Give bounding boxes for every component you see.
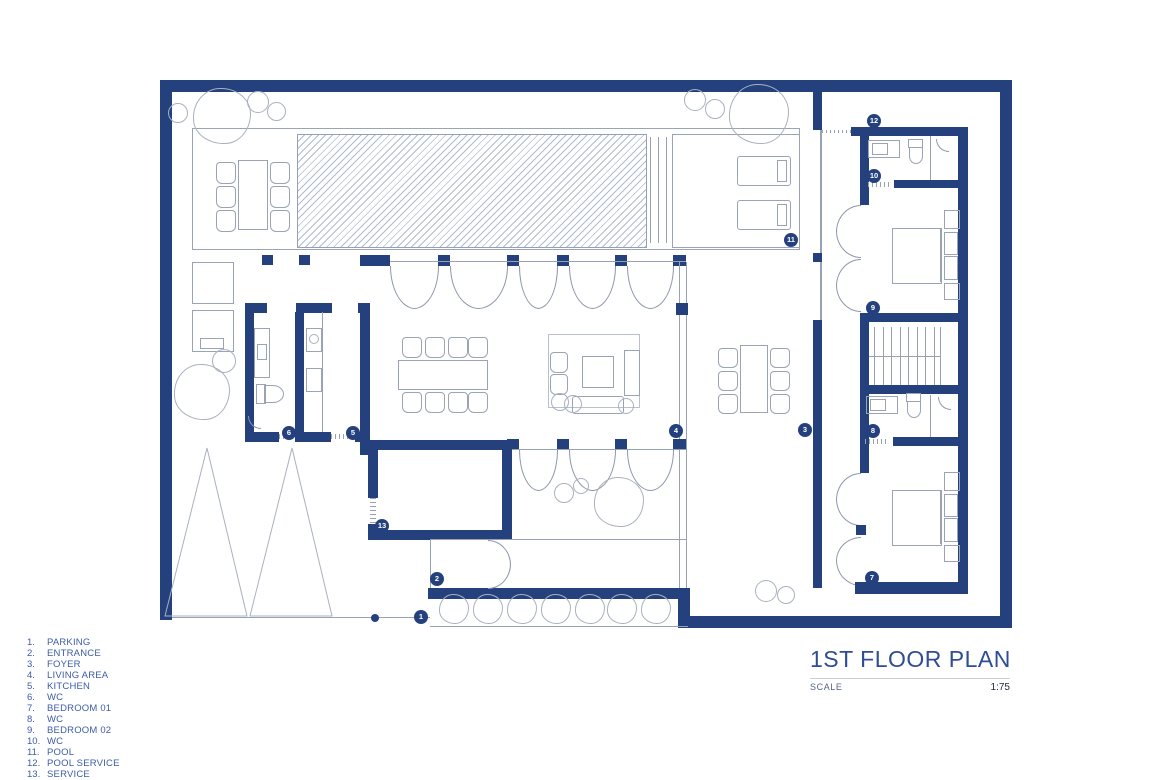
nightstand: [944, 472, 960, 491]
outdoor-chair: [270, 162, 290, 184]
legend-row: 13.SERVICE: [27, 769, 120, 780]
wall-segment: [368, 440, 378, 498]
foyer-chair: [770, 394, 790, 414]
sink: [870, 399, 886, 411]
sink: [872, 143, 888, 155]
tree: [554, 483, 574, 503]
door-track-line: [390, 261, 686, 262]
foyer-chair: [718, 348, 738, 368]
legend-number: 8.: [27, 714, 47, 725]
legend-row: 7.BEDROOM 01: [27, 703, 120, 714]
legend-number: 1.: [27, 637, 47, 648]
legend-number: 6.: [27, 692, 47, 703]
legend-label: POOL: [47, 747, 74, 758]
sun-lounger-backrest: [777, 160, 787, 182]
title-rule: [810, 678, 1010, 679]
shrub: [607, 594, 637, 624]
outdoor-chair: [216, 210, 236, 232]
toilet: [909, 147, 923, 164]
wall-segment: [894, 180, 966, 188]
dining-chair: [425, 392, 445, 413]
wall-segment: [502, 440, 512, 540]
wall-segment: [160, 80, 1012, 92]
nightstand: [944, 283, 960, 300]
ground-line: [172, 617, 430, 618]
legend-number: 3.: [27, 659, 47, 670]
door-arc: [519, 450, 539, 491]
bed: [892, 490, 942, 546]
wall-segment: [860, 446, 869, 473]
sun-lounger-backrest: [777, 204, 787, 226]
legend-row: 9.BEDROOM 02: [27, 725, 120, 736]
legend-label: WC: [47, 736, 63, 747]
tree: [684, 89, 706, 111]
scale-label: SCALE: [810, 682, 843, 693]
shower-head: [936, 139, 949, 152]
shrub: [541, 594, 571, 624]
legend-row: 3.FOYER: [27, 659, 120, 670]
tree: [247, 91, 269, 113]
bed: [892, 228, 942, 284]
legend-number: 5.: [27, 681, 47, 692]
entrance-door-arc: [488, 564, 511, 589]
plan-marker-3: 3: [798, 423, 812, 437]
tree: [594, 477, 644, 527]
outdoor-chair: [270, 186, 290, 208]
side-table: [551, 393, 569, 411]
tree: [168, 103, 188, 123]
legend-label: BEDROOM 01: [47, 703, 111, 714]
wall-segment: [813, 320, 822, 588]
legend-label: FOYER: [47, 659, 81, 670]
floor-plan-sheet: 1.PARKING2.ENTRANCE3.FOYER4.LIVING AREA5…: [0, 0, 1170, 780]
wall-segment: [295, 312, 304, 434]
pillow: [944, 232, 958, 255]
stair-mid-line: [869, 356, 940, 357]
corridor-line: [430, 539, 686, 540]
legend-number: 2.: [27, 648, 47, 659]
plan-marker-7: 7: [865, 571, 879, 585]
wall-segment: [688, 616, 1012, 628]
legend-row: 12.POOL SERVICE: [27, 758, 120, 769]
tree: [755, 580, 777, 602]
legend: 1.PARKING2.ENTRANCE3.FOYER4.LIVING AREA5…: [27, 637, 120, 780]
ground-line: [430, 626, 688, 627]
legend-row: 2.ENTRANCE: [27, 648, 120, 659]
coffee-table: [582, 356, 614, 388]
legend-label: POOL SERVICE: [47, 758, 120, 769]
foyer-chair: [718, 394, 738, 414]
door-arc: [836, 231, 861, 258]
dining-chair: [448, 392, 468, 413]
door-threshold: [865, 439, 888, 444]
shrub: [641, 594, 671, 624]
legend-number: 7.: [27, 703, 47, 714]
legend-label: WC: [47, 714, 63, 725]
plan-marker-12: 12: [867, 114, 881, 128]
wall-segment: [368, 440, 512, 450]
dining-chair: [402, 392, 422, 413]
column: [299, 255, 310, 265]
kitchen-counter-line: [322, 312, 323, 432]
partition-line: [930, 395, 931, 437]
shrub: [507, 594, 537, 624]
pillow: [944, 518, 958, 542]
tree: [729, 84, 789, 144]
kitchen-sink-basin: [309, 334, 319, 344]
pool-step-line: [666, 137, 667, 243]
plan-marker-9: 9: [866, 301, 880, 315]
dining-table: [398, 360, 488, 390]
door-arc: [650, 450, 674, 491]
legend-label: PARKING: [47, 637, 90, 648]
legend-row: 4.LIVING AREA: [27, 670, 120, 681]
legend-number: 4.: [27, 670, 47, 681]
wall-segment: [1000, 80, 1012, 628]
pillow: [944, 494, 958, 517]
dining-chair: [425, 337, 445, 358]
door-threshold: [822, 130, 851, 133]
plan-marker-2: 2: [430, 572, 444, 586]
shrub: [575, 594, 605, 624]
planter-grill: [200, 338, 224, 349]
legend-number: 12.: [27, 758, 47, 769]
column: [676, 303, 688, 315]
dining-chair: [448, 337, 468, 358]
tree: [174, 364, 230, 420]
wall-segment: [813, 89, 822, 130]
door-arc: [627, 266, 651, 309]
outdoor-dining-table: [238, 160, 268, 230]
tree: [267, 102, 286, 121]
shrub: [473, 594, 503, 624]
title-block: 1ST FLOOR PLAN SCALE 1:75: [810, 646, 1010, 693]
parking-canopy-triangles: [160, 440, 340, 620]
door-arc: [519, 266, 539, 309]
legend-label: LIVING AREA: [47, 670, 108, 681]
dining-chair: [468, 392, 488, 413]
door-arc: [414, 266, 439, 309]
plan-marker-11: 11: [784, 233, 798, 247]
foyer-chair: [770, 348, 790, 368]
legend-label: KITCHEN: [47, 681, 90, 692]
plan-marker-10: 10: [867, 169, 881, 183]
wall-segment: [893, 437, 966, 446]
column: [856, 525, 866, 535]
door-arc: [538, 450, 558, 491]
plan-marker-13: 13: [375, 519, 389, 533]
legend-row: 10.WC: [27, 736, 120, 747]
door-arc: [836, 285, 861, 312]
legend-row: 6.WC: [27, 692, 120, 703]
legend-number: 9.: [27, 725, 47, 736]
partition-line: [930, 136, 931, 180]
door-arc: [836, 259, 861, 286]
legend-row: 11.POOL: [27, 747, 120, 758]
nightstand: [944, 545, 960, 562]
door-arc: [478, 266, 508, 309]
armchair: [550, 352, 568, 373]
drawing-title: 1ST FLOOR PLAN: [810, 646, 1010, 673]
shrub: [439, 594, 469, 624]
door-arc: [592, 266, 616, 309]
tree: [705, 99, 725, 119]
column: [813, 253, 822, 262]
corridor-line: [820, 130, 822, 320]
outdoor-chair: [216, 186, 236, 208]
legend-label: WC: [47, 692, 63, 703]
door-arc: [538, 266, 558, 309]
tree: [193, 88, 251, 144]
bed-headboard-line: [940, 229, 941, 282]
foyer-table: [740, 345, 768, 413]
pool-lounge-outline: [672, 134, 800, 248]
legend-row: 1.PARKING: [27, 637, 120, 648]
bed-headboard-line: [940, 491, 941, 544]
nightstand: [944, 210, 960, 229]
legend-label: BEDROOM 02: [47, 725, 111, 736]
door-threshold: [370, 498, 376, 524]
door-arc: [390, 266, 415, 309]
plan-marker-1: 1: [414, 610, 428, 624]
legend-number: 13.: [27, 769, 47, 780]
legend-label: SERVICE: [47, 769, 90, 780]
planter: [192, 262, 234, 304]
sofa-arm: [618, 398, 634, 414]
stair-landing-line: [940, 327, 941, 385]
wall-segment: [678, 588, 690, 628]
legend-number: 10.: [27, 736, 47, 747]
wall-segment: [851, 127, 968, 136]
tree: [777, 586, 795, 604]
plan-marker-4: 4: [669, 424, 683, 438]
foyer-chair: [718, 371, 738, 391]
foyer-chair: [770, 371, 790, 391]
dining-chair: [402, 337, 422, 358]
outdoor-chair: [270, 210, 290, 232]
entrance-door-arc: [488, 540, 511, 565]
shower-head: [938, 397, 951, 410]
sink: [257, 344, 267, 360]
scale-value: 1:75: [991, 682, 1010, 693]
toilet: [907, 401, 921, 418]
door-arc: [569, 266, 593, 309]
wall-segment: [958, 127, 968, 594]
sofa: [624, 350, 640, 396]
legend-number: 11.: [27, 747, 47, 758]
kitchen-hob: [306, 368, 322, 392]
door-arc: [650, 266, 674, 309]
legend-row: 5.KITCHEN: [27, 681, 120, 692]
door-arc: [836, 205, 861, 232]
tree: [573, 478, 589, 494]
pillow: [944, 256, 958, 280]
plan-marker-6: 6: [282, 426, 296, 440]
plan-marker-5: 5: [346, 426, 360, 440]
armchair: [550, 374, 568, 395]
legend-row: 8.WC: [27, 714, 120, 725]
pool: [297, 134, 647, 248]
door-arc: [836, 499, 861, 526]
plan-marker-8: 8: [866, 424, 880, 438]
door-arc: [836, 473, 861, 500]
column: [262, 255, 273, 265]
wall-segment: [360, 255, 390, 266]
door-arc: [450, 266, 479, 309]
outdoor-chair: [216, 162, 236, 184]
dining-chair: [468, 337, 488, 358]
pool-step-line: [658, 137, 659, 243]
column-dot: [371, 614, 379, 622]
pool-step-line: [650, 137, 651, 243]
legend-label: ENTRANCE: [47, 648, 101, 659]
toilet: [264, 385, 284, 403]
door-arc: [836, 537, 861, 561]
